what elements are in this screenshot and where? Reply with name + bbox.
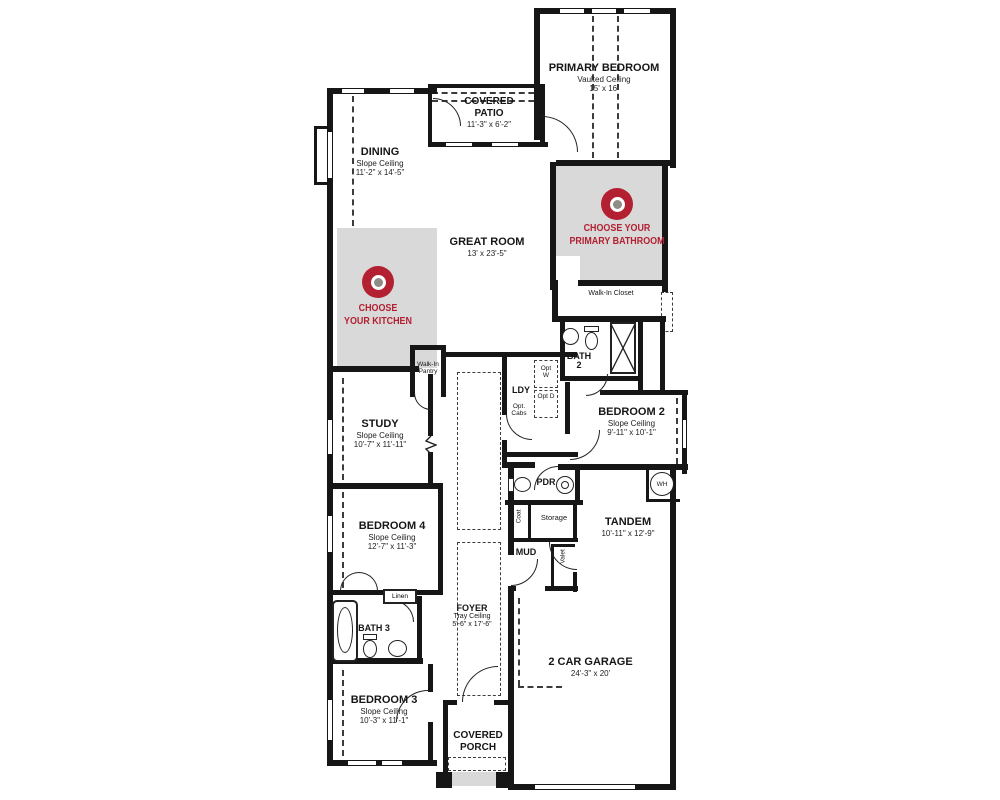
room-label-covered-patio: COVERED PATIO 11'-3" x 6'-2"	[450, 96, 528, 129]
room-name: PRIMARY BEDROOM	[548, 62, 660, 75]
room-name: LDY	[506, 386, 536, 395]
room-ceiling: Slope Ceiling	[330, 707, 438, 716]
room-label-powder: PDR	[534, 478, 558, 487]
wall-segment	[502, 452, 578, 457]
room-name: MUD	[510, 548, 542, 557]
option-text: Opt. Cabs	[506, 404, 532, 418]
room-name: Walk-In Pantry	[412, 362, 444, 376]
room-name: BEDROOM 3	[330, 694, 438, 707]
floor-plan: WH Linen PRIMARY BEDROOM Vaulted Ceiling…	[0, 0, 1000, 800]
room-name: Walk-In Closet	[584, 290, 638, 298]
option-label-dryer: Opt D	[537, 394, 555, 401]
porch-post	[436, 772, 452, 788]
room-label-storage: Storage	[532, 514, 576, 523]
choose-primary-bathroom-label[interactable]: CHOOSE YOUR PRIMARY BATHROOM	[564, 222, 669, 248]
window	[624, 8, 650, 14]
room-dims: 15' x 16'	[548, 84, 660, 93]
water-heater-wall	[646, 468, 649, 502]
room-label-tandem: TANDEM 10'-11" x 12'-9"	[578, 516, 678, 538]
choose-line-1: CHOOSE YOUR	[564, 222, 669, 235]
wall-segment	[428, 664, 433, 692]
target-ring	[610, 197, 625, 212]
wall-segment	[565, 382, 570, 434]
room-label-bath-3: BATH 3	[352, 624, 396, 633]
room-ceiling: Slope Ceiling	[328, 431, 432, 440]
room-label-foyer: FOYER Tray Ceiling 5'-6" x 17'-6"	[444, 604, 500, 629]
bay-window-frame	[316, 126, 328, 129]
wall-segment	[428, 84, 545, 88]
wall-segment	[443, 352, 577, 357]
room-label-mud: MUD	[510, 548, 542, 557]
room-label-laundry: LDY	[506, 386, 536, 395]
window	[348, 760, 376, 766]
wall-segment	[550, 162, 556, 290]
room-ceiling: Vaulted Ceiling	[548, 75, 660, 84]
shower-x-icon	[610, 322, 636, 374]
option-label-cabs: Opt. Cabs	[506, 404, 532, 418]
wall-segment	[638, 316, 643, 394]
wall-segment	[578, 280, 668, 286]
room-dims: 10'-11" x 12'-9"	[578, 529, 678, 538]
wall-segment	[556, 160, 670, 166]
bathroom-zone-notch	[556, 256, 580, 286]
porch-step	[452, 772, 496, 786]
room-name: TANDEM	[578, 516, 678, 529]
garage-dash	[518, 598, 520, 686]
room-label-garage: 2 CAR GARAGE 24'-3" x 20'	[528, 656, 653, 678]
room-dims: 11'-2" x 14'-5"	[328, 168, 432, 177]
patio-roof-dash	[432, 92, 544, 94]
room-label-primary-bedroom: PRIMARY BEDROOM Vaulted Ceiling 15' x 16…	[548, 62, 660, 94]
window	[446, 142, 472, 147]
door-arc	[359, 572, 378, 591]
room-name: BEDROOM 2	[584, 406, 679, 419]
option-label-washer: Opt W	[537, 366, 555, 380]
window	[327, 516, 333, 552]
choose-primary-bathroom-target-icon[interactable]	[601, 188, 633, 220]
window	[382, 760, 402, 766]
water-heater-wall	[646, 499, 680, 502]
room-name: COVERED PATIO	[450, 96, 528, 120]
garage-door	[535, 784, 635, 790]
room-dims: 24'-3" x 20'	[528, 669, 653, 678]
room-dims: 13' x 23'-5"	[428, 249, 546, 258]
choose-kitchen-target-icon[interactable]	[362, 266, 394, 298]
room-dims: 10'-7" x 11'-11"	[328, 440, 432, 449]
garage-dash	[518, 686, 562, 688]
room-dims: 12'-7" x 11'-3"	[336, 542, 448, 551]
room-name: Valet	[561, 540, 568, 572]
choose-line-2: YOUR KITCHEN	[337, 315, 419, 328]
room-name: BATH 2	[564, 352, 594, 371]
wall-segment	[428, 84, 432, 146]
room-name: PDR	[534, 478, 558, 487]
porch-step-dash	[448, 757, 506, 771]
room-label-bath-2: BATH 2	[564, 352, 594, 371]
room-ceiling: Slope Ceiling	[328, 159, 432, 168]
room-label-bedroom-3: BEDROOM 3 Slope Ceiling 10'-3" x 11'-1"	[330, 694, 438, 726]
sink-icon	[388, 640, 407, 657]
room-label-great-room: GREAT ROOM 13' x 23'-5"	[428, 236, 546, 258]
wall-segment	[552, 316, 666, 322]
target-dot	[374, 278, 383, 287]
window	[390, 88, 414, 94]
room-name: GREAT ROOM	[428, 236, 546, 249]
room-name: STUDY	[328, 418, 432, 431]
wall-segment	[428, 452, 433, 486]
wall-segment	[443, 700, 448, 772]
window	[682, 420, 687, 448]
window	[592, 8, 616, 14]
wall-segment	[327, 366, 419, 372]
room-dims: 10'-3" x 11'-1"	[330, 716, 438, 725]
bay-window-frame	[316, 182, 328, 185]
porch-post	[496, 772, 512, 788]
wall-segment	[508, 588, 514, 702]
wall-segment	[600, 390, 688, 395]
linen-label: Linen	[392, 593, 408, 600]
door-arc	[506, 414, 532, 440]
wall-segment	[428, 722, 433, 764]
room-label-dining: DINING Slope Ceiling 11'-2" x 14'-5"	[328, 146, 432, 178]
tub-basin-icon	[337, 607, 353, 653]
room-ceiling: Tray Ceiling	[444, 613, 500, 621]
wall-segment	[670, 8, 676, 168]
wall-segment	[660, 316, 665, 392]
wall-segment	[528, 500, 531, 540]
room-dims: 9'-11" x 10'-1"	[584, 428, 679, 437]
room-dims: 5'-6" x 17'-6"	[444, 621, 500, 629]
sink-icon	[562, 328, 579, 345]
room-label-valet: Valet	[561, 540, 568, 572]
room-label-study: STUDY Slope Ceiling 10'-7" x 11'-11"	[328, 418, 432, 450]
choose-kitchen-label[interactable]: CHOOSE YOUR KITCHEN	[337, 302, 419, 328]
window	[492, 142, 518, 147]
room-name: BEDROOM 4	[336, 520, 448, 533]
room-ceiling: Slope Ceiling	[584, 419, 679, 428]
linen-closet: Linen	[383, 589, 417, 604]
water-heater-label: WH	[657, 481, 668, 488]
wall-segment	[327, 483, 443, 489]
room-dims: 11'-3" x 6'-2"	[450, 120, 528, 129]
toilet-icon	[585, 332, 598, 350]
choose-line-2: PRIMARY BATHROOM	[564, 235, 669, 248]
room-name: BATH 3	[352, 624, 396, 633]
room-label-walk-in-pantry: Walk-In Pantry	[412, 362, 444, 376]
bay-window-frame	[314, 126, 317, 185]
door-arc	[542, 116, 578, 152]
room-label-bedroom-4: BEDROOM 4 Slope Ceiling 12'-7" x 11'-3"	[336, 520, 448, 552]
sink-bowl-icon	[561, 481, 569, 489]
room-name: COVERED PORCH	[450, 730, 506, 754]
tray-ceiling-dash	[457, 372, 501, 530]
water-heater-icon: WH	[650, 472, 674, 496]
window	[560, 8, 584, 14]
wall-segment	[417, 596, 422, 658]
room-label-coat: Coat	[517, 500, 524, 532]
room-label-covered-porch: COVERED PORCH	[450, 730, 506, 754]
room-name: Coat	[517, 500, 524, 532]
door-arc	[511, 559, 538, 586]
wall-segment	[575, 464, 580, 505]
window	[342, 88, 364, 94]
room-name: FOYER	[444, 604, 500, 613]
toilet-icon	[514, 477, 531, 492]
wall-segment	[508, 586, 516, 591]
choose-line-1: CHOOSE	[337, 302, 419, 315]
option-text: Opt D	[537, 394, 555, 401]
room-name: DINING	[328, 146, 432, 159]
room-ceiling: Slope Ceiling	[336, 533, 448, 542]
wall-segment	[545, 586, 578, 591]
room-name: Storage	[532, 514, 576, 523]
toilet-icon	[363, 640, 377, 658]
option-text: Opt W	[537, 366, 555, 380]
room-label-bedroom-2: BEDROOM 2 Slope Ceiling 9'-11" x 10'-1"	[584, 406, 679, 438]
room-name: 2 CAR GARAGE	[528, 656, 653, 669]
target-dot	[613, 200, 622, 209]
room-label-walk-in-closet: Walk-In Closet	[584, 290, 638, 298]
wall-segment	[445, 700, 457, 705]
door-arc	[414, 393, 431, 410]
target-ring	[371, 275, 386, 290]
